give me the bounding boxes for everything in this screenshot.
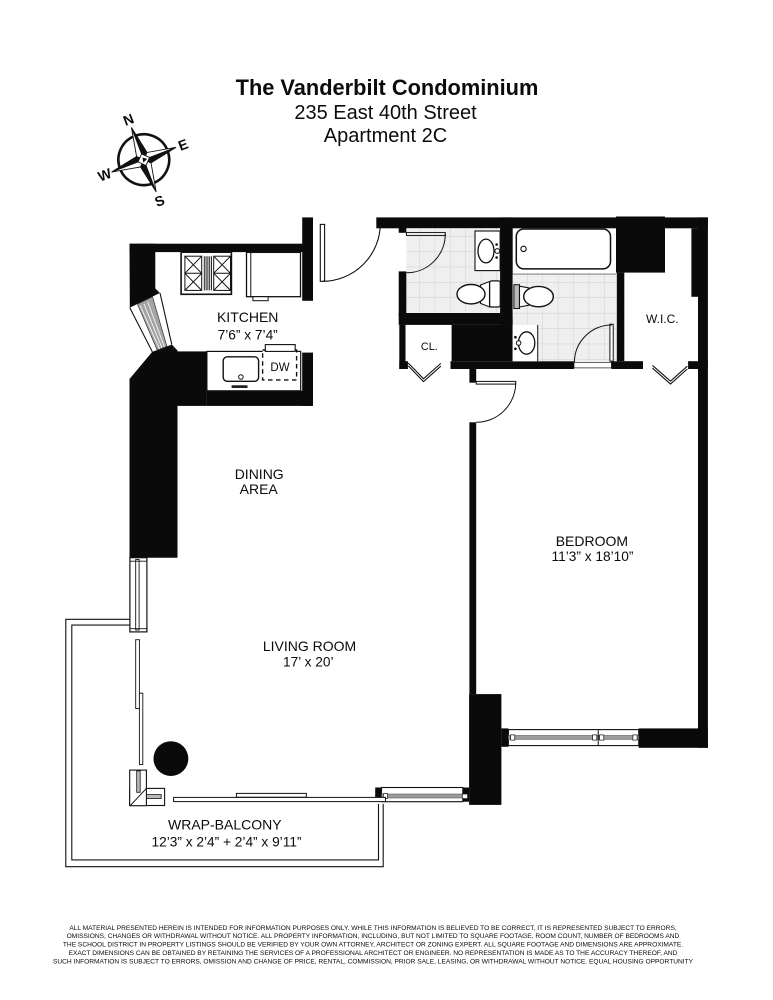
svg-text:DW: DW	[270, 362, 289, 374]
svg-text:LIVING ROOM: LIVING ROOM	[263, 638, 356, 654]
svg-text:CL.: CL.	[421, 341, 438, 353]
svg-text:BEDROOM: BEDROOM	[556, 533, 628, 549]
svg-text:AREA: AREA	[240, 481, 279, 497]
svg-text:Apartment 2C: Apartment 2C	[324, 125, 447, 147]
svg-text:WRAP-BALCONY: WRAP-BALCONY	[168, 816, 282, 832]
svg-text:OMISSIONS, CHANGES OR WITHDRAW: OMISSIONS, CHANGES OR WITHDRAWAL WITHOUT…	[67, 933, 680, 940]
svg-text:17’ x 20’: 17’ x 20’	[283, 655, 333, 670]
svg-text:SUCH INFORMATION IS SUBJECT TO: SUCH INFORMATION IS SUBJECT TO ERRORS, O…	[53, 958, 694, 965]
svg-text:THE SCHOOL DISTRICT IN PROPERT: THE SCHOOL DISTRICT IN PROPERTY LISTINGS…	[63, 942, 683, 949]
svg-text:EXACT DIMENSIONS CAN BE OBTAIN: EXACT DIMENSIONS CAN BE OBTAINED BY RETA…	[69, 950, 678, 957]
svg-text:The Vanderbilt Condominium: The Vanderbilt Condominium	[236, 75, 539, 100]
svg-text:7’6” x 7’4”: 7’6” x 7’4”	[218, 327, 279, 342]
svg-text:W.I.C.: W.I.C.	[646, 312, 679, 326]
svg-text:DINING: DINING	[235, 466, 284, 482]
svg-text:11’3” x 18’10”: 11’3” x 18’10”	[552, 549, 634, 564]
svg-text:KITCHEN: KITCHEN	[217, 309, 278, 325]
svg-text:ALL MATERIAL PRESENTED HEREIN: ALL MATERIAL PRESENTED HEREIN IS INTENDE…	[69, 925, 677, 932]
svg-text:235 East 40th Street: 235 East 40th Street	[294, 102, 477, 124]
svg-text:12’3” x 2’4” + 2’4” x 9’11”: 12’3” x 2’4” + 2’4” x 9’11”	[151, 835, 301, 850]
